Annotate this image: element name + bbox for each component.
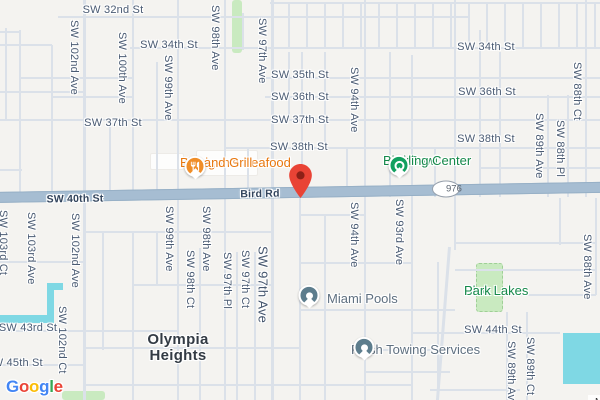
street-label: SW 88th Ct xyxy=(571,62,583,120)
google-logo-letter: G xyxy=(6,377,19,396)
street-label: SW 34th St xyxy=(140,39,198,51)
destination-pin-icon[interactable] xyxy=(289,164,312,198)
road-segment xyxy=(0,31,20,33)
road-segment xyxy=(224,0,226,400)
park-area xyxy=(232,0,242,53)
street-label: SW 94th Ave xyxy=(348,67,360,133)
google-logo-letter: g xyxy=(39,377,49,396)
google-logo-letter: o xyxy=(29,377,39,396)
street-label: SW 102nd Ave xyxy=(69,213,81,288)
street-label: SW 38th St xyxy=(270,141,328,153)
road-segment xyxy=(236,252,238,400)
generic-poi-icon[interactable] xyxy=(299,285,320,306)
street-label: SW 94th Ave xyxy=(348,202,360,268)
street-label: SW 34th St xyxy=(457,41,515,53)
road-segment xyxy=(595,198,597,295)
neighborhood-label: OlympiaHeights xyxy=(147,332,208,364)
road-segment xyxy=(242,13,244,50)
street-label: SW 88th Ave xyxy=(581,234,593,300)
street-label: SW 97th Ave xyxy=(256,18,268,84)
street-label: SW 103rd Ave xyxy=(25,212,37,285)
road-segment xyxy=(51,45,53,197)
google-logo-letter: o xyxy=(19,377,29,396)
map-canvas[interactable]: SW 32nd StSW 34th StSW 34th StSW 35th St… xyxy=(0,0,600,400)
street-label: SW 102nd Ave xyxy=(68,20,80,95)
street-label: SW 89th Ave xyxy=(505,341,517,400)
street-label: SW 36th St xyxy=(458,86,516,98)
road-segment xyxy=(547,95,549,197)
street-label: SW 93rd Ave xyxy=(393,199,405,265)
road-segment xyxy=(132,232,134,400)
road-segment xyxy=(133,284,272,286)
street-label: SW 45th St xyxy=(0,357,43,369)
restaurant-poi-icon[interactable] xyxy=(185,156,206,177)
road-segment xyxy=(389,52,391,197)
street-label: Bird Rd xyxy=(240,188,280,201)
road-segment xyxy=(109,120,111,197)
bowling-ring xyxy=(394,160,404,170)
bowling-poi-icon[interactable] xyxy=(389,155,410,176)
street-label: SW 97th Ct xyxy=(239,250,251,308)
street-label: SW 99th Ave xyxy=(163,206,175,272)
street-label: SW 88th Pl xyxy=(554,120,566,177)
road-segment xyxy=(19,30,21,197)
road-segment xyxy=(559,198,561,245)
google-logo-letter: e xyxy=(54,377,63,396)
road-segment xyxy=(102,232,104,350)
street-label: SW 43rd St xyxy=(0,322,57,334)
street-label: SW 103rd Ct xyxy=(0,210,9,275)
road-segment xyxy=(0,169,22,171)
street-label: SW 38th St xyxy=(457,133,515,145)
road-segment xyxy=(132,0,134,197)
map-attribution: Map data ©2025 Google xyxy=(588,395,600,400)
road-segment xyxy=(288,52,290,120)
road-segment xyxy=(479,30,481,197)
street-label: SW 40th St xyxy=(46,193,103,206)
road-segment xyxy=(84,231,272,233)
street-label: SW 98th Ct xyxy=(184,250,196,308)
route-976-shield: 976 xyxy=(432,181,460,198)
fork-knife-glyph xyxy=(190,161,201,172)
google-logo[interactable]: Google xyxy=(6,377,63,397)
street-label: SW 97th Ave xyxy=(256,246,271,323)
street-label: SW 44th St xyxy=(464,324,522,336)
road-segment xyxy=(455,269,596,271)
street-label: SW 37th St xyxy=(84,117,142,129)
water-area xyxy=(563,333,600,384)
road-segment xyxy=(324,215,326,400)
road-segment xyxy=(156,232,158,285)
street-label: SW 89th Ct xyxy=(524,337,536,395)
street-label: SW 37th St xyxy=(271,114,329,126)
street-label: SW 99th Ave xyxy=(162,55,174,121)
street-label: SW 98th Ave xyxy=(200,206,212,272)
road-segment xyxy=(5,28,7,120)
street-label: SW 100th Ave xyxy=(116,32,128,104)
road-segment xyxy=(156,62,158,197)
street-label: SW 102nd Ct xyxy=(56,306,68,374)
road-segment xyxy=(499,52,501,197)
poi-dot xyxy=(306,292,313,299)
street-label: SW 35th St xyxy=(271,69,329,81)
poi-dot xyxy=(361,344,368,351)
street-label: SW 98th Ave xyxy=(209,5,221,71)
street-label: SW 36th St xyxy=(271,91,329,103)
street-label: SW 89th Ave xyxy=(533,113,545,179)
road-segment xyxy=(455,242,596,244)
street-label: SW 32nd St xyxy=(83,4,144,16)
road-segment xyxy=(271,0,274,400)
generic-poi-icon[interactable] xyxy=(354,337,375,358)
road-segment xyxy=(300,309,455,311)
road-grid-block xyxy=(272,3,596,49)
route-shield-label: 976 xyxy=(446,182,462,197)
street-label: SW 97th Pl xyxy=(221,252,233,309)
road-segment xyxy=(0,44,52,46)
road-segment xyxy=(84,384,412,386)
